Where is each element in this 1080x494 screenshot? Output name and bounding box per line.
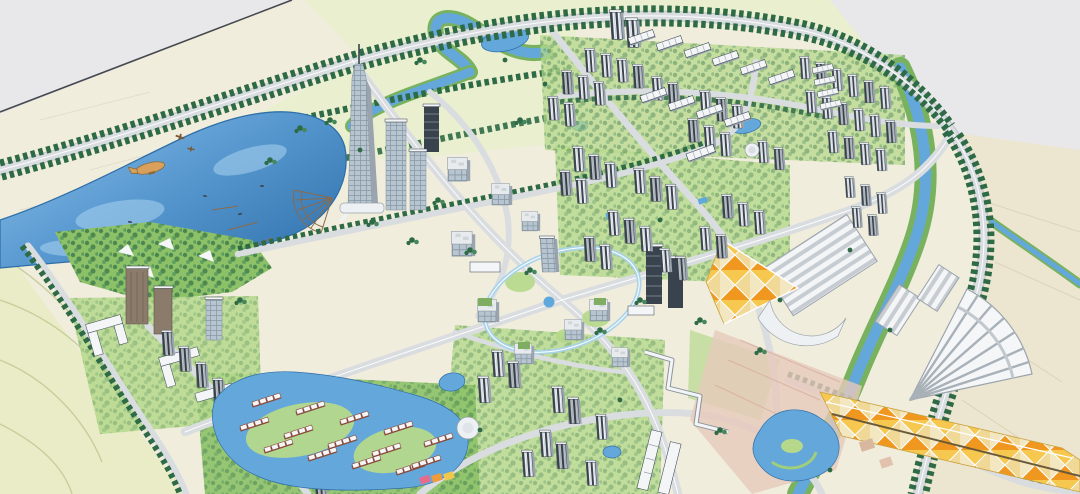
masterplan-svg: Aerial 3D rendering of a lakeside urban … bbox=[0, 0, 1080, 494]
masterplan-rendering: Aerial 3D rendering of a lakeside urban … bbox=[0, 0, 1080, 494]
dark-office-tower bbox=[646, 246, 662, 304]
secondary-tower bbox=[386, 122, 406, 210]
